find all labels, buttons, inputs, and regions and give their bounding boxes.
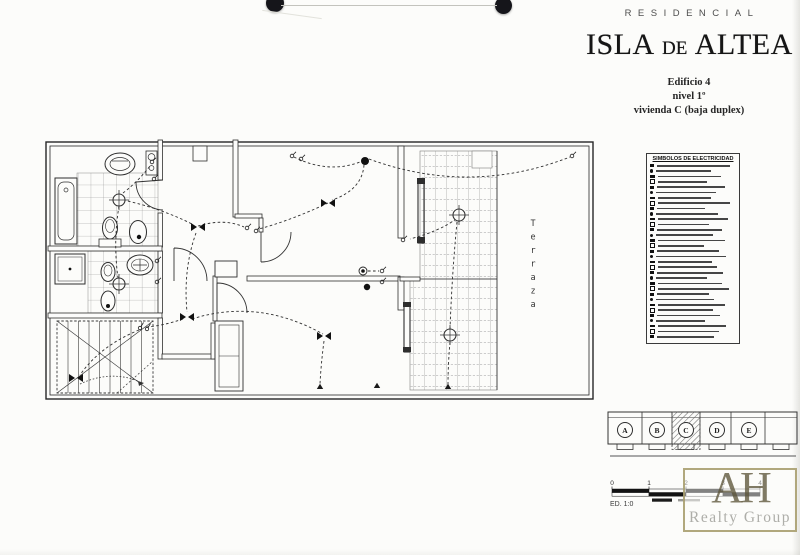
paper-top-edge: [281, 5, 497, 6]
bidet-1: [130, 221, 147, 244]
electrical-symbols-legend: SIMBOLOS DE ELECTRICIDAD: [646, 153, 740, 344]
legend-symbol-icon: [650, 243, 655, 248]
legend-symbol-icon: [650, 239, 655, 241]
scale-tick-label: 0: [610, 480, 614, 487]
legend-entry-text: [657, 186, 726, 188]
legend-entry-text: [658, 197, 711, 199]
legend-entry-text: [658, 176, 722, 178]
level-label: nivel 1º: [586, 90, 792, 104]
binder-dot-right: [495, 0, 512, 14]
legend-row: [650, 335, 736, 339]
legend-entry-text: [658, 283, 723, 285]
legend-symbol-icon: [650, 325, 655, 327]
legend-entry-text: [658, 181, 708, 183]
legend-row: [650, 191, 736, 195]
legend-symbol-icon: [650, 276, 653, 279]
door-room-south: [217, 283, 247, 313]
legend-symbol-icon: [650, 314, 654, 317]
legend-entry-text: [657, 229, 722, 231]
legend-entry-text: [657, 315, 721, 317]
legend-row: [650, 244, 736, 248]
legend-row: [650, 276, 736, 280]
light-point-icon: [317, 332, 331, 340]
legend-row: [650, 212, 736, 216]
legend-entry-text: [658, 240, 725, 242]
legend-entry-text: [657, 272, 723, 274]
legend-symbol-icon: [650, 164, 654, 167]
legend-row: [650, 260, 736, 264]
paper-bottom-shadow: [0, 549, 800, 555]
legend-entry-text: [658, 325, 727, 327]
legend-symbol-icon: [650, 304, 655, 306]
legend-entry-text: [656, 234, 713, 236]
legend-symbol-icon: [650, 179, 655, 184]
double-switch-icon: [138, 323, 150, 331]
legend-row: [650, 180, 736, 184]
title-de: DE: [661, 38, 688, 59]
outlet-dot: [361, 269, 365, 273]
watermark-initials: AH: [685, 467, 795, 509]
switch-icon: [380, 267, 386, 273]
bathtub: [55, 178, 77, 244]
legend-row: [650, 196, 736, 200]
legend-entry-text: [658, 224, 710, 226]
legend-entry-text: [658, 261, 712, 263]
legend-symbol-icon: [650, 298, 653, 301]
project-title: ISLA DE ALTEA: [586, 28, 792, 62]
legend-entry-text: [656, 277, 707, 279]
legend-entry-text: [656, 299, 714, 301]
legend-symbol-icon: [650, 201, 655, 206]
paper-crease: [262, 10, 322, 19]
scale-tick-label: 1: [647, 480, 651, 487]
floor-plan: Terraza: [40, 134, 600, 404]
legend-row: [650, 233, 736, 237]
staircase: [57, 321, 153, 393]
legend-title: SIMBOLOS DE ELECTRICIDAD: [650, 156, 736, 162]
keyplan-unit-labels: ABCDE: [618, 423, 757, 438]
legend-symbol-icon: [650, 207, 654, 210]
legend-entry-text: [658, 304, 726, 306]
legend-entry-text: [656, 256, 726, 258]
legend-entry-text: [658, 218, 729, 220]
bidet-2: [101, 291, 115, 311]
legend-row: [650, 217, 736, 221]
keyplan-unit-letter: D: [714, 426, 720, 435]
legend-symbol-icon: [650, 169, 653, 172]
light-point-icon: [180, 313, 194, 321]
legend-row: [650, 223, 736, 227]
switch-icon: [290, 152, 296, 158]
building-label: Edificio 4: [586, 76, 792, 90]
legend-entry-text: [658, 245, 704, 247]
legend-row: [650, 185, 736, 189]
legend-symbol-icon: [650, 212, 653, 215]
legend-symbol-icon: [650, 265, 655, 270]
legend-row: [650, 169, 736, 173]
legend-row: [650, 201, 736, 205]
junction-point-icon: [361, 157, 369, 165]
keyplan-unit-letter: A: [622, 426, 628, 435]
legend-symbol-icon: [650, 286, 655, 291]
legend-row: [650, 298, 736, 302]
keyplan-unit-letter: E: [746, 426, 751, 435]
legend-row: [650, 314, 736, 318]
scanned-floor-plan-sheet: { "header": { "brand": "RESIDENCIAL", "t…: [0, 0, 800, 555]
legend-symbol-icon: [650, 197, 655, 199]
legend-rows: [650, 164, 736, 339]
legend-row: [650, 292, 736, 296]
legend-symbol-icon: [650, 191, 653, 194]
realty-watermark: AH Realty Group: [683, 468, 797, 532]
legend-entry-text: [657, 293, 709, 295]
legend-symbol-icon: [650, 234, 653, 237]
legend-row: [650, 175, 736, 179]
legend-row: [650, 266, 736, 270]
closets: [215, 261, 243, 391]
legend-symbol-icon: [650, 282, 655, 284]
legend-symbol-icon: [650, 293, 654, 296]
door-living: [261, 232, 291, 262]
watermark-name: Realty Group: [685, 510, 795, 525]
legend-entry-text: [657, 208, 705, 210]
legend-entry-text: [656, 192, 716, 194]
legend-symbol-icon: [650, 218, 655, 220]
legend-row: [650, 250, 736, 254]
legend-entry-text: [656, 320, 705, 322]
legend-entry-text: [658, 331, 719, 333]
keyplan-unit-letter: B: [654, 426, 659, 435]
legend-symbol-icon: [650, 261, 655, 263]
legend-row: [650, 207, 736, 211]
legend-row: [650, 228, 736, 232]
socket-icon: [374, 383, 380, 388]
legend-row: [650, 282, 736, 286]
water-heater: [146, 151, 157, 175]
legend-row: [650, 255, 736, 259]
dwelling-label: vivienda C (baja duplex): [586, 104, 792, 118]
legend-symbol-icon: [650, 319, 653, 322]
legend-row: [650, 271, 736, 275]
legend-row: [650, 303, 736, 307]
toilet-2: [101, 263, 115, 282]
legend-row: [650, 319, 736, 323]
legend-symbol-icon: [650, 255, 653, 258]
legend-entry-text: [656, 170, 711, 172]
legend-entry-text: [658, 288, 729, 290]
legend-entry-text: [658, 266, 717, 268]
legend-symbol-icon: [650, 186, 654, 189]
legend-symbol-icon: [650, 335, 654, 338]
legend-symbol-icon: [650, 329, 655, 334]
legend-symbol-icon: [650, 222, 655, 227]
legend-symbol-icon: [650, 175, 655, 177]
legend-symbol-icon: [650, 250, 654, 253]
legend-entry-text: [657, 336, 715, 338]
legend-row: [650, 239, 736, 243]
junction-point-icon: [364, 284, 370, 290]
scale-caption: ED. 1:0: [610, 501, 633, 507]
scale-units-smudge: [652, 499, 672, 502]
legend-symbol-icon: [650, 308, 655, 313]
shower-tray: [55, 254, 85, 284]
legend-row: [650, 287, 736, 291]
legend-entry-text: [658, 202, 730, 204]
legend-row: [650, 324, 736, 328]
keyplan-unit-letter: C: [683, 426, 688, 435]
legend-entry-text: [656, 213, 718, 215]
socket-icon: [317, 384, 323, 389]
legend-row: [650, 164, 736, 168]
sheet-header: RESIDENCIAL ISLA DE ALTEA Edificio 4 niv…: [586, 8, 792, 118]
washbasin-1: [105, 153, 135, 175]
unit-info: Edificio 4 nivel 1º vivienda C (baja dup…: [586, 76, 792, 118]
legend-symbol-icon: [650, 271, 654, 274]
switch-icon: [245, 224, 251, 230]
legend-entry-text: [657, 165, 731, 167]
building-key-plan: ABCDE: [600, 404, 800, 468]
legend-symbol-icon: [650, 228, 654, 231]
switch-icon: [570, 152, 576, 158]
legend-entry-text: [658, 309, 714, 311]
legend-row: [650, 330, 736, 334]
legend-row: [650, 308, 736, 312]
brand-label: RESIDENCIAL: [592, 8, 792, 19]
washbasin-2: [127, 255, 153, 275]
terrace-label: Terraza: [530, 219, 535, 310]
legend-entry-text: [657, 250, 720, 252]
